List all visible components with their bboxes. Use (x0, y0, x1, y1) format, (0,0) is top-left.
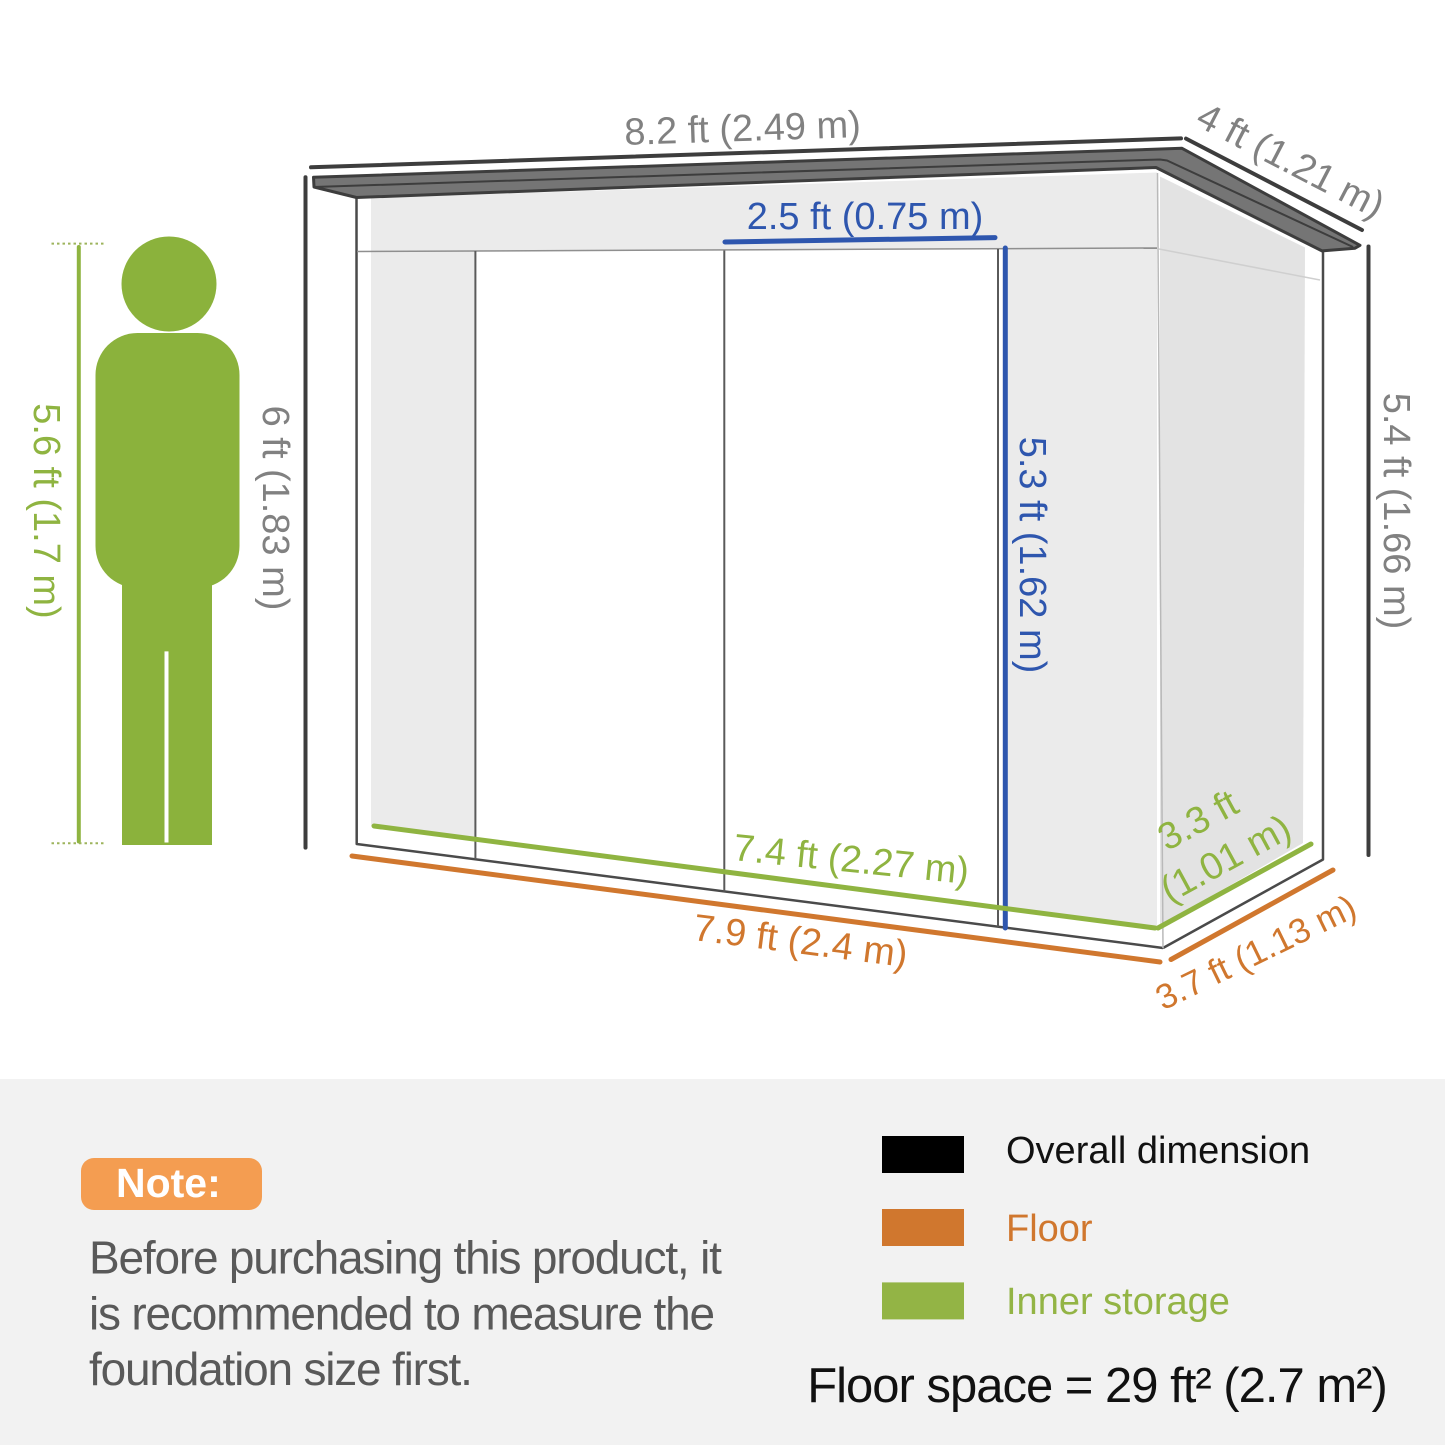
svg-text:5.3 ft (1.62 m): 5.3 ft (1.62 m) (1011, 437, 1053, 674)
svg-text:is recommended to measure the: is recommended to measure the (89, 1287, 714, 1339)
svg-text:foundation size first.: foundation size first. (89, 1343, 472, 1395)
svg-text:5.4 ft (1.66 m): 5.4 ft (1.66 m) (1375, 393, 1417, 630)
svg-text:8.2 ft (2.49 m): 8.2 ft (2.49 m) (624, 104, 862, 154)
svg-text:2.5 ft (0.75 m): 2.5 ft (0.75 m) (747, 196, 984, 238)
svg-text:Inner storage: Inner storage (1006, 1281, 1230, 1323)
svg-text:Floor: Floor (1006, 1208, 1093, 1250)
svg-text:Note:: Note: (116, 1160, 221, 1206)
svg-text:Before purchasing this product: Before purchasing this product, it (89, 1232, 722, 1284)
svg-text:Overall dimension: Overall dimension (1006, 1130, 1310, 1172)
svg-text:Floor space = 29 ft² (2.7 m²): Floor space = 29 ft² (2.7 m²) (807, 1359, 1387, 1413)
svg-text:5.6 ft (1.7 m): 5.6 ft (1.7 m) (25, 403, 67, 618)
svg-text:6 ft (1.83 m): 6 ft (1.83 m) (254, 406, 296, 611)
